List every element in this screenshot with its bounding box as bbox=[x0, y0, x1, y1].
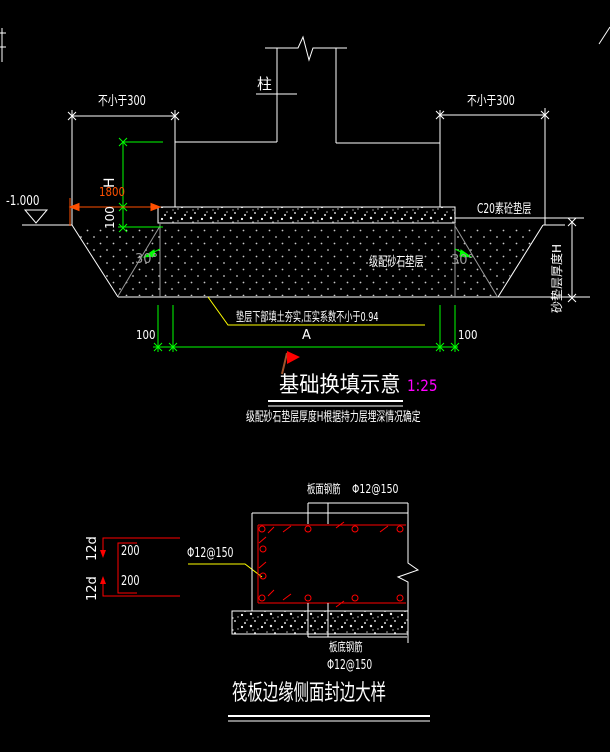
c20-cushion-label: C20素砼垫层 bbox=[477, 203, 531, 217]
compaction-note: 垫层下部填土夯实,压实系数不小于0.94 bbox=[236, 310, 379, 324]
dim-1800: 1800 bbox=[99, 186, 125, 199]
hook-12d-top: 12d bbox=[86, 536, 100, 561]
slab-cushion-section bbox=[232, 611, 408, 634]
sand-depth-label: 砂垫层厚度H bbox=[551, 244, 564, 313]
top-detail-note: 级配砂石垫层厚度H根据持力层埋深情况确定 bbox=[246, 411, 421, 425]
top-bar-label: 板面钢筋 bbox=[307, 483, 341, 496]
dim-100-right: 100 bbox=[458, 329, 477, 342]
elevation-label: -1.000 bbox=[6, 195, 40, 209]
elevation-marker bbox=[25, 210, 47, 223]
column-label: 柱 bbox=[257, 76, 272, 93]
c20-cushion-section bbox=[158, 207, 455, 223]
top-detail-title: 基础换填示意 bbox=[279, 374, 400, 398]
slope-angle-right-label: 30° bbox=[451, 254, 474, 268]
bottom-detail-title: 筏板边缘侧面封边大样 bbox=[232, 682, 386, 706]
dim-100-cushion: 100 bbox=[104, 206, 117, 229]
edge-bar-detail bbox=[100, 538, 180, 596]
bottom-bar-label: 板底钢筋 bbox=[329, 641, 363, 654]
graded-gravel-label: 级配砂石垫层 bbox=[369, 256, 424, 270]
cad-drawing-canvas: 不小于300 不小于300 柱 -1.000 H 1800 100 C20素砼垫… bbox=[0, 0, 610, 752]
title-underlines-top bbox=[268, 401, 403, 406]
dim-a: A bbox=[302, 329, 311, 343]
top-right-break-mark bbox=[599, 27, 610, 44]
dim-200-bottom: 200 bbox=[121, 575, 140, 589]
left-edge-break-mark bbox=[0, 28, 6, 62]
dim-200-top: 200 bbox=[121, 545, 140, 559]
revision-flag-icon bbox=[282, 351, 300, 374]
column-lines bbox=[256, 48, 336, 143]
hook-12d-bottom: 12d bbox=[86, 576, 100, 601]
slope-angle-left-label: 30° bbox=[135, 253, 158, 267]
top-detail-scale: 1:25 bbox=[407, 377, 438, 395]
top-bar-spec: Φ12@150 bbox=[352, 483, 399, 496]
title-underlines-bottom bbox=[228, 716, 430, 721]
dim-100-left: 100 bbox=[136, 329, 155, 342]
footing-outline bbox=[175, 142, 440, 207]
dim-min300-left: 不小于300 bbox=[98, 95, 146, 109]
edge-bar-spec: Φ12@150 bbox=[187, 547, 234, 561]
slab-rebar bbox=[258, 522, 406, 607]
bottom-bar-spec: Φ12@150 bbox=[327, 659, 372, 673]
dim-min300-right: 不小于300 bbox=[467, 95, 515, 109]
